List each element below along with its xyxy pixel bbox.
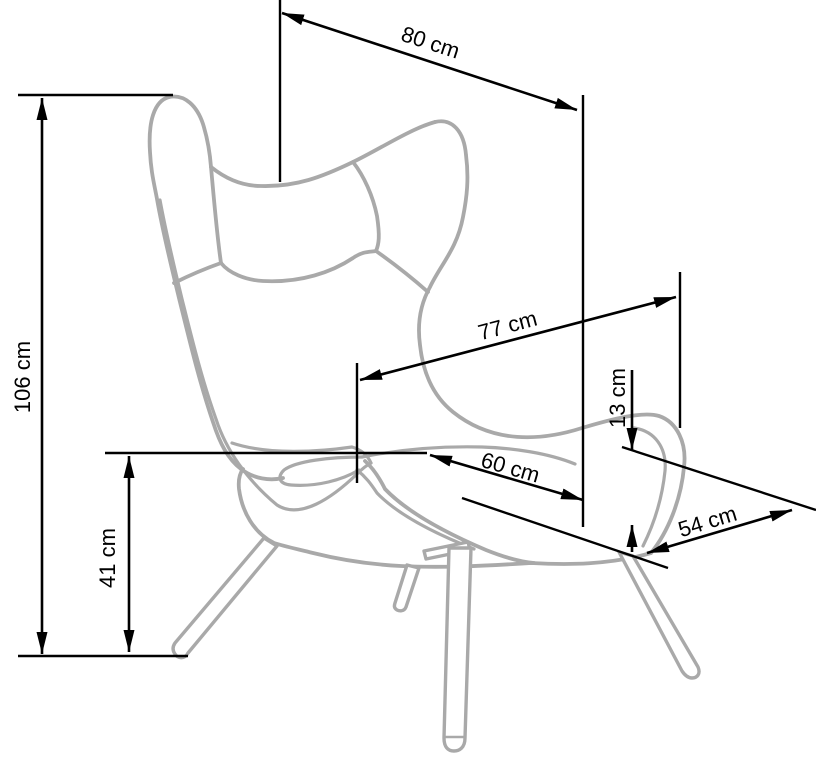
dimension-overall-width: 80 cm xyxy=(282,13,577,110)
chair-seat-top-edge xyxy=(362,447,575,464)
chair-leg-front-right xyxy=(444,548,471,751)
chair-legs xyxy=(173,538,699,751)
extension-seatdepth-lower xyxy=(462,498,668,568)
chair-wing-inner-seam xyxy=(353,162,379,251)
chair-leg-rear-left xyxy=(394,565,419,611)
chair-dimension-drawing: 106 cm 41 cm 80 cm 77 cm 60 cm 54 cm xyxy=(0,0,816,776)
extension-seatdepth-upper xyxy=(622,447,816,510)
chair-cushion-bottom-seam xyxy=(221,251,376,281)
chair-seam-left xyxy=(174,263,221,283)
dimension-label-106cm: 106 cm xyxy=(10,341,35,413)
dimension-label-41cm: 41 cm xyxy=(95,528,120,588)
dimension-diagram: 106 cm 41 cm 80 cm 77 cm 60 cm 54 cm xyxy=(0,0,816,776)
chair-leg-rear-right xyxy=(619,552,699,678)
dimension-overall-height: 106 cm xyxy=(10,98,42,654)
chair-leg-front-left xyxy=(173,538,277,658)
arrow-80cm xyxy=(282,13,577,110)
dimension-label-13cm: 13 cm xyxy=(605,368,630,428)
dimension-label-77cm: 77 cm xyxy=(475,306,539,346)
chair-headrest-curve xyxy=(211,122,435,186)
dimension-cushion-thickness: 13 cm xyxy=(605,368,632,552)
chair-right-lobe-inner xyxy=(634,428,665,546)
chair-seam-right xyxy=(376,251,428,292)
dimension-lines: 106 cm 41 cm 80 cm 77 cm 60 cm 54 cm xyxy=(10,0,816,656)
dimension-overall-depth: 77 cm xyxy=(360,297,676,380)
chair-left-ear-seam xyxy=(169,97,221,263)
dimension-seat-height: 41 cm xyxy=(95,456,129,652)
dimension-label-80cm: 80 cm xyxy=(398,21,463,63)
chair-right-wing-outline xyxy=(419,121,685,553)
dimension-seat-width: 60 cm xyxy=(430,447,583,500)
